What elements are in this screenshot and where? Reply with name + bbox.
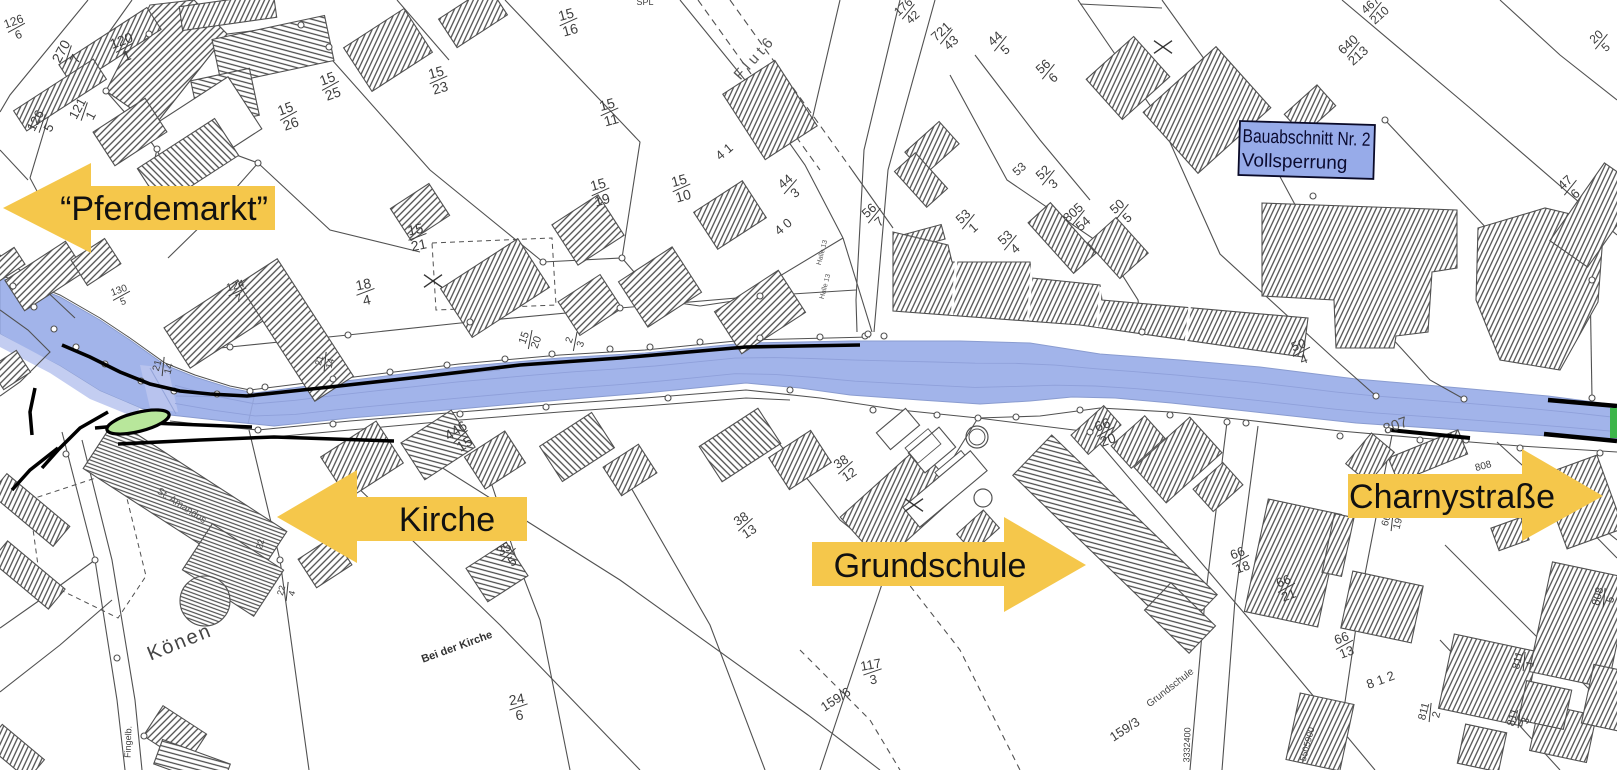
svg-text:Grundschule: Grundschule — [834, 547, 1027, 585]
svg-text:3332400: 3332400 — [1181, 727, 1192, 762]
svg-text:Charnystraße: Charnystraße — [1349, 478, 1555, 516]
svg-text:“Pferdemarkt”: “Pferdemarkt” — [60, 190, 268, 228]
svg-text:Fingelb.: Fingelb. — [122, 726, 133, 758]
svg-text:Vollsperrung: Vollsperrung — [1242, 150, 1348, 174]
svg-text:Kirche: Kirche — [399, 501, 495, 539]
svg-text:Bauabschnitt Nr. 2: Bauabschnitt Nr. 2 — [1242, 126, 1371, 151]
svg-text:SPL: SPL — [636, 0, 653, 7]
